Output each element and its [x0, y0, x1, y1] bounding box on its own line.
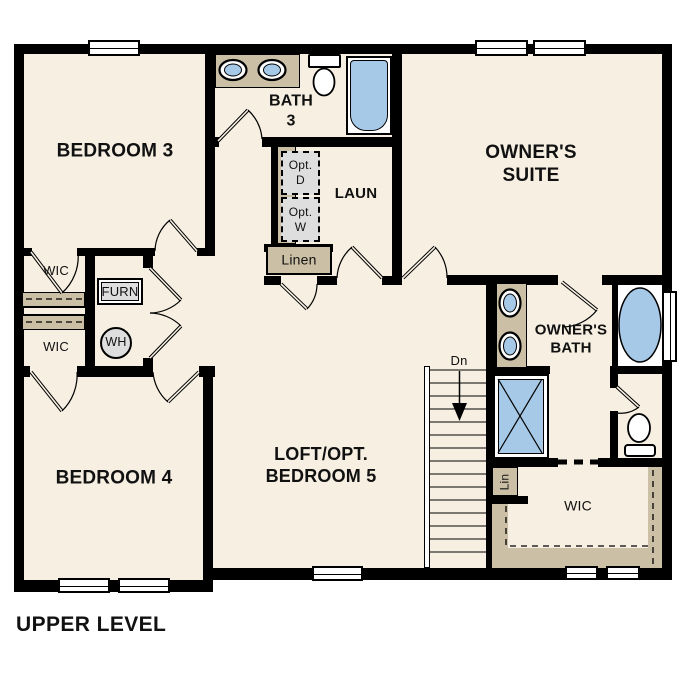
- shower-x-mark: [498, 379, 542, 453]
- label-loft: LOFT/OPT. BEDROOM 5: [266, 444, 377, 488]
- stair-treads: [429, 370, 486, 552]
- sink: [220, 60, 247, 80]
- bathtub-owners-bath: [619, 288, 661, 362]
- label-bath3: BATH 3: [269, 91, 313, 130]
- sink: [259, 60, 286, 80]
- label-wic-upper: WIC: [43, 263, 69, 279]
- closet-rod-dashed-lines: [26, 299, 83, 322]
- label-lin-closet: Lin: [498, 474, 513, 491]
- label-wic-lower: WIC: [43, 339, 69, 355]
- toilet-bowl-owners-bath: [628, 414, 650, 442]
- label-owners-bath: OWNER'S BATH: [535, 322, 607, 359]
- label-wic-owner: WIC: [564, 497, 592, 514]
- sink: [500, 290, 521, 317]
- floor-plan: Opt. D Opt. W FURN WH: [0, 0, 687, 687]
- label-owners-suite: OWNER'S SUITE: [485, 141, 576, 187]
- label-bedroom4: BEDROOM 4: [56, 466, 173, 489]
- sink: [500, 333, 521, 360]
- label-bedroom3: BEDROOM 3: [57, 139, 174, 162]
- label-linen: Linen: [281, 251, 316, 268]
- shelf-dashed-lines: [506, 470, 653, 564]
- label-laundry: LAUN: [335, 185, 377, 203]
- label-stairs-down: Dn: [450, 353, 467, 369]
- toilet-bowl-bath3: [314, 69, 335, 96]
- plan-title: UPPER LEVEL: [16, 612, 166, 638]
